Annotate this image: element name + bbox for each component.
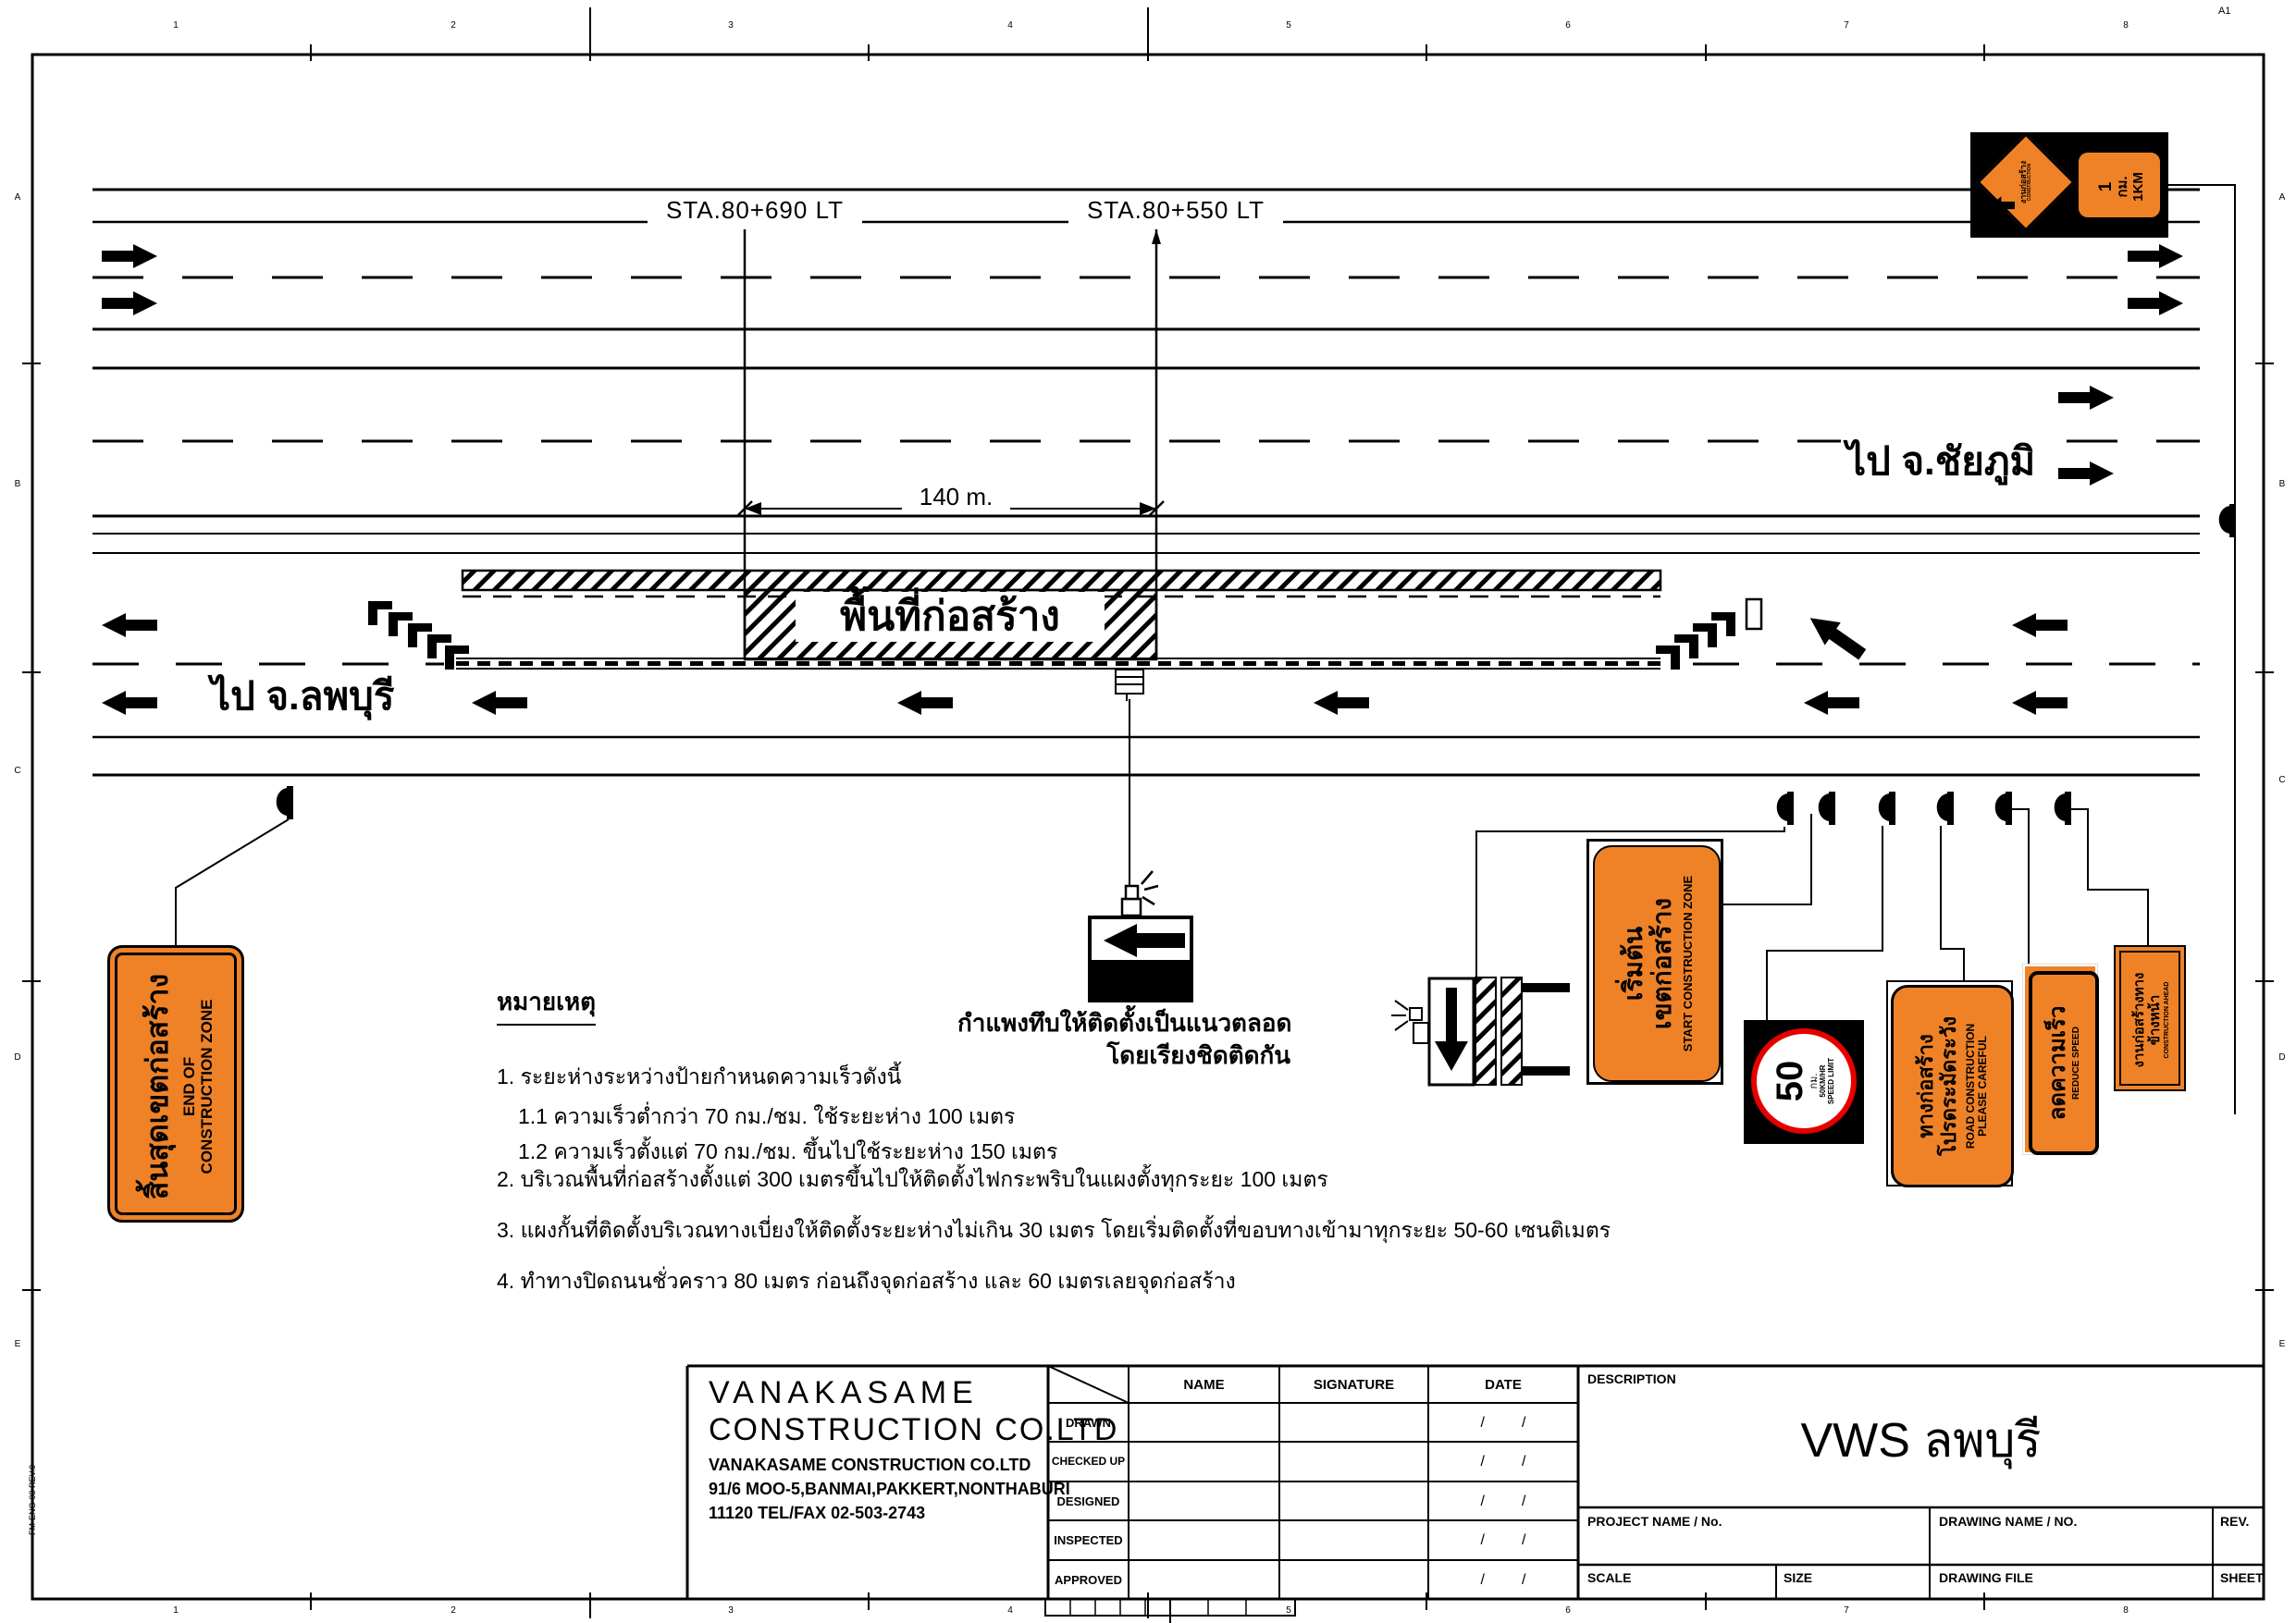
start-zone-thai2: เขตก่อสร้าง: [1648, 898, 1676, 1029]
merge-arrow: [1802, 607, 1870, 666]
project-name-label: PROJECT NAME / No.: [1587, 1514, 1722, 1529]
work-area-label: พื้นที่ก่อสร้าง: [796, 592, 1105, 642]
grid-row-label: A: [11, 192, 24, 203]
grid-col-label: 4: [996, 1605, 1024, 1616]
grid-row-label: E: [2276, 1339, 2289, 1349]
company-address-line2: 91/6 MOO-5,BANMAI,PAKKERT,NONTHABURI: [709, 1480, 1070, 1499]
road-construction-en2: PLEASE CAREFUL: [1977, 1036, 1989, 1137]
km-panel-line3: 1KM: [2131, 172, 2147, 202]
company-address-line1: VANAKASAME CONSTRUCTION CO.LTD: [709, 1456, 1031, 1475]
note-item: 4. ทำทางปิดถนนชั่วคราว 80 เมตร ก่อนถึงจุ…: [497, 1265, 1236, 1298]
grid-col-label: 7: [1833, 20, 1860, 31]
row-label: CHECKED UP: [1048, 1455, 1129, 1468]
drawing-sheet: 1 2 3 4 5 6 7 8 1 2 3 4 5 6 7 8 A B C D …: [0, 0, 2296, 1623]
form-ref-label: FM-ENG-03 REV.0: [28, 1465, 37, 1535]
sheet-label: SHEET: [2220, 1570, 2264, 1585]
company-address-line3: 11120 TEL/FAX 02-503-2743: [709, 1504, 925, 1523]
end-zone-sign: สิ้นสุดเขตก่อสร้าง END OF CONSTRUCTION Z…: [107, 945, 244, 1223]
col-header-name: NAME: [1129, 1377, 1279, 1393]
grid-row-label: C: [2276, 775, 2289, 785]
grid-row-label: D: [11, 1052, 24, 1063]
wall-barrier-symbol: [1116, 670, 1143, 701]
reduce-speed-en: REDUCE SPEED: [2071, 1027, 2081, 1100]
grid-col-label: 2: [439, 1605, 467, 1616]
grid-col-label: 8: [2112, 1605, 2140, 1616]
note-item: 1.1 ความเร็วต่ำกว่า 70 กม./ชม. ใช้ระยะห่…: [518, 1100, 1015, 1134]
grid-col-label: 6: [1554, 1605, 1582, 1616]
rev-label: REV.: [2220, 1514, 2249, 1529]
end-zone-thai: สิ้นสุดเขตก่อสร้าง: [142, 974, 175, 1199]
wall-note-line2: โดยเรียงชิดติดกัน: [957, 1037, 1290, 1075]
grid-col-label: 1: [162, 20, 190, 31]
end-zone-en1: END OF: [180, 1057, 198, 1116]
row-label: DRAWN: [1048, 1416, 1129, 1430]
grid-col-label: 3: [717, 20, 745, 31]
construction-ahead-thai1: งานก่อสร้างทาง: [2132, 973, 2148, 1068]
note-item: 1. ระยะห่างระหว่างป้ายกำหนดความเร็วดังนี…: [497, 1061, 901, 1094]
barrier-taper-left: [368, 601, 469, 670]
scale-label: SCALE: [1587, 1570, 1631, 1585]
road-construction-thai1: ทางก่อสร้าง: [1915, 1034, 1938, 1137]
road-construction-en1: ROAD CONSTRUCTION: [1965, 1024, 1977, 1149]
construction-arrow-icon: [1991, 193, 2015, 217]
drawing-file-label: DRAWING FILE: [1939, 1570, 2033, 1585]
reduce-speed-thai: ลดความเร็ว: [2046, 1006, 2071, 1121]
grid-row-label: E: [11, 1339, 24, 1349]
speed-sign: 50 กม. 50KM/HR SPEED LIMIT: [1751, 1028, 1857, 1134]
grid-col-label: 3: [717, 1605, 745, 1616]
dimension-label: 140 m.: [902, 483, 1010, 511]
grid-row-label: A: [2276, 192, 2289, 203]
row-label: APPROVED: [1048, 1573, 1129, 1587]
row-label: DESIGNED: [1048, 1494, 1129, 1508]
col-header-date: DATE: [1428, 1377, 1578, 1393]
sheet-size-label: A1: [2218, 6, 2230, 17]
construction-diamond-content: งานก่อสร้าง CONSTRUCTION: [1991, 147, 2061, 217]
wall-barrier-detail-sign: [1088, 916, 1193, 1002]
flasher-icon: [1122, 871, 1158, 916]
grid-row-label: C: [11, 766, 24, 776]
drawing-name-label: DRAWING NAME / NO.: [1939, 1514, 2077, 1529]
grid-row-label: B: [2276, 479, 2289, 489]
grid-col-label: 4: [996, 20, 1024, 31]
grid-col-label: 8: [2112, 20, 2140, 31]
direction-label-chaiyaphum: ไป จ.ชัยภูมิ: [1841, 431, 2041, 492]
note-item: 2. บริเวณพื้นที่ก่อสร้างตั้งแต่ 300 เมตร…: [497, 1163, 1328, 1197]
start-zone-thai1: เริ่มต้น: [1619, 927, 1648, 1001]
size-label: SIZE: [1784, 1570, 1812, 1585]
km-distance-panel: 1 กม. 1KM: [2077, 151, 2162, 219]
leader-lines: [176, 185, 2235, 1114]
company-name-line1: VANAKASAME: [709, 1375, 979, 1411]
grid-row-label: B: [11, 479, 24, 489]
km-panel-line2: กม.: [2116, 176, 2131, 197]
wall-barrier-black-half: [1092, 960, 1190, 999]
note-item: 3. แผงกั้นที่ติดตั้งบริเวณทางเบี่ยงให้ติ…: [497, 1214, 1611, 1248]
barricade-detail: [1391, 977, 1570, 1085]
speed-value: 50: [1771, 1061, 1808, 1102]
grid-col-label: 5: [1275, 20, 1302, 31]
grid-col-label: 5: [1275, 1605, 1302, 1616]
diamond-en-label: CONSTRUCTION: [2028, 164, 2033, 201]
direction-label-lopburi: ไป จ.ลพบุรี: [205, 666, 400, 727]
notes-title: หมายเหตุ: [497, 983, 596, 1026]
description-value: VWS ลพบุรี: [1578, 1401, 2264, 1478]
grid-col-label: 7: [1833, 1605, 1860, 1616]
barrier-taper-right: [1656, 599, 1761, 670]
end-zone-en2: CONSTRUCTION ZONE: [198, 1000, 216, 1174]
left-arrow-icon: [1094, 921, 1192, 960]
start-zone-sign: เริ่มต้น เขตก่อสร้าง START CONSTRUCTION …: [1593, 845, 1721, 1082]
date-cell: / /: [1428, 1532, 1578, 1549]
grid-col-label: 2: [439, 20, 467, 31]
date-cell: / /: [1428, 1415, 1578, 1432]
station-label-left: STA.80+690 LT: [648, 196, 862, 225]
date-cell: / /: [1428, 1454, 1578, 1470]
km-panel-line1: 1: [2096, 182, 2116, 192]
date-cell: / /: [1428, 1494, 1578, 1510]
grid-row-label: D: [2276, 1052, 2289, 1063]
grid-col-label: 6: [1554, 20, 1582, 31]
reduce-speed-sign: ลดความเร็ว REDUCE SPEED: [2029, 971, 2099, 1155]
construction-ahead-thai2: ข้างหน้า: [2148, 995, 2164, 1046]
row-label: INSPECTED: [1048, 1533, 1129, 1547]
col-header-signature: SIGNATURE: [1279, 1377, 1428, 1393]
construction-ahead-en: CONSTRUCTION AHEAD: [2164, 982, 2171, 1059]
road-construction-thai2: โปรดระมัดระวัง: [1938, 1016, 1961, 1156]
date-cell: / /: [1428, 1572, 1578, 1589]
road-construction-sign: ทางก่อสร้าง โปรดระมัดระวัง ROAD CONSTRUC…: [1891, 985, 2014, 1187]
construction-ahead-sign: งานก่อสร้างทาง ข้างหน้า CONSTRUCTION AHE…: [2114, 945, 2186, 1091]
grid-col-label: 1: [162, 1605, 190, 1616]
start-zone-en: START CONSTRUCTION ZONE: [1682, 876, 1696, 1051]
station-label-right: STA.80+550 LT: [1068, 196, 1283, 225]
speed-en2: SPEED LIMIT: [1828, 1058, 1836, 1104]
description-label: DESCRIPTION: [1587, 1371, 1676, 1386]
